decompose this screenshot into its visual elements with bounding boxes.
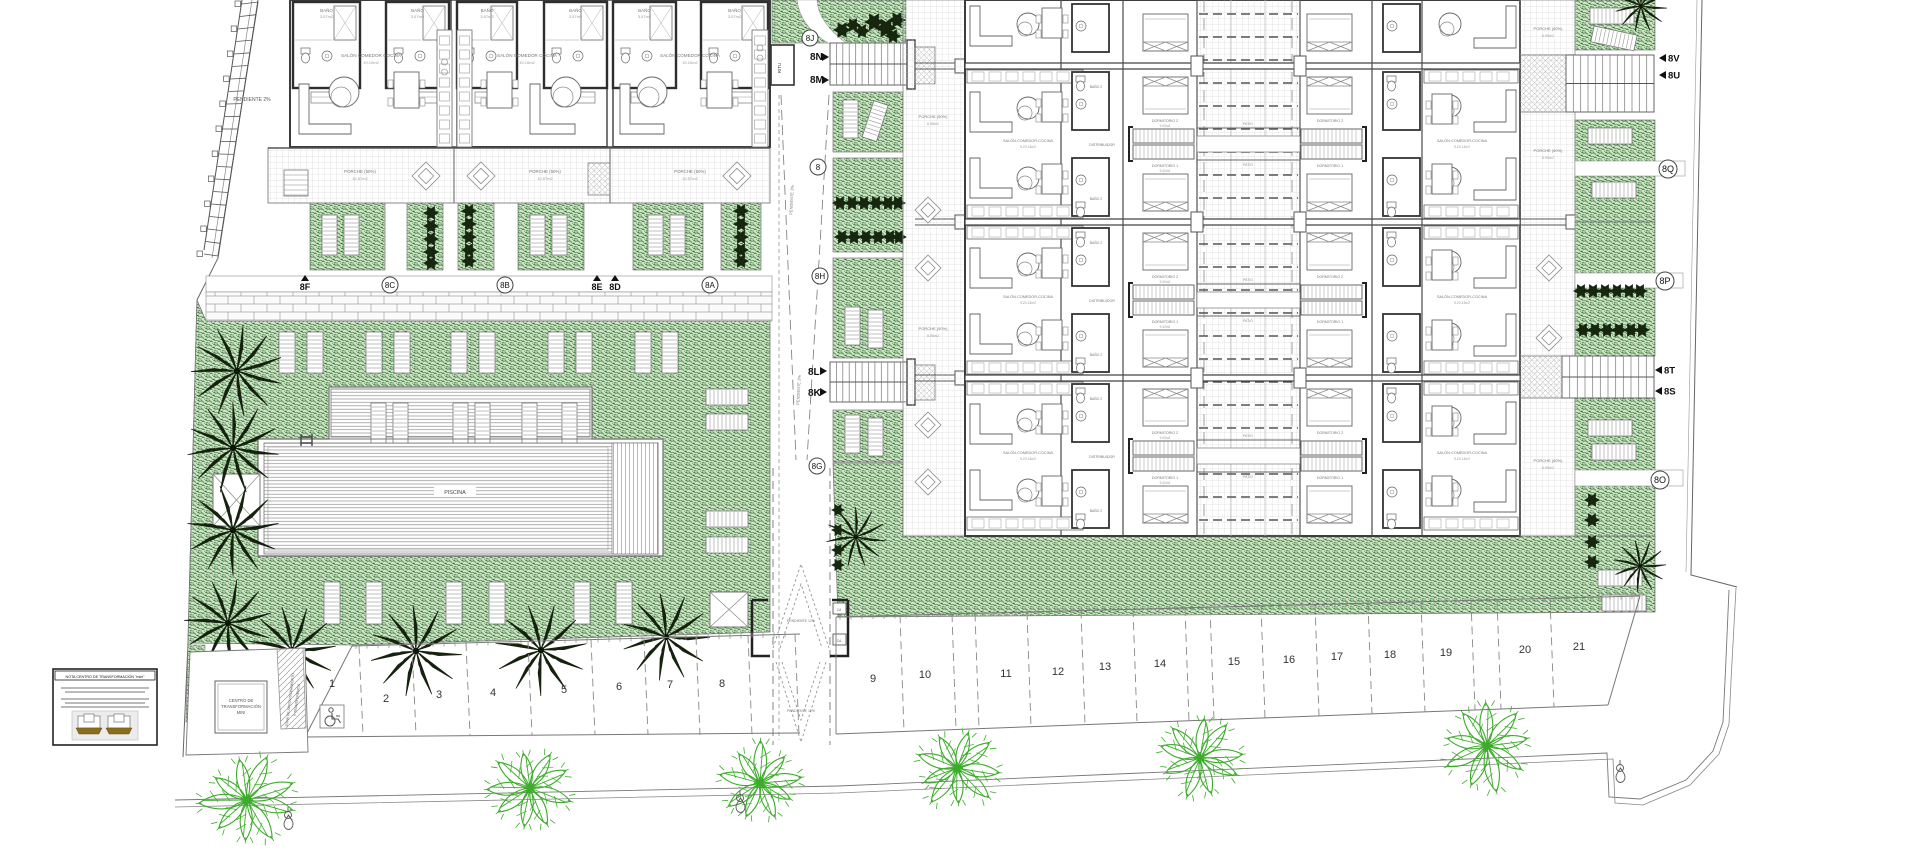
svg-text:DORMITORIO 2: DORMITORIO 2 [1317, 431, 1343, 435]
svg-text:8U: 8U [1668, 71, 1680, 82]
svg-text:SALÓN-COMEDOR-COCINA: SALÓN-COMEDOR-COCINA [1437, 450, 1487, 455]
svg-text:19.10m2: 19.10m2 [363, 60, 379, 65]
svg-text:9.20.13m2: 9.20.13m2 [1454, 301, 1470, 305]
svg-text:10.57m2: 10.57m2 [682, 176, 698, 181]
svg-text:PISCINA: PISCINA [444, 490, 466, 496]
svg-text:12: 12 [1052, 666, 1064, 678]
svg-text:3.57m2: 3.57m2 [728, 14, 742, 19]
svg-text:DORMITORIO 2: DORMITORIO 2 [1317, 275, 1343, 279]
svg-text:2: 2 [383, 693, 389, 705]
svg-text:BAÑO 2: BAÑO 2 [1090, 240, 1103, 245]
svg-text:BAÑO: BAÑO [728, 7, 741, 13]
svg-text:8: 8 [719, 678, 725, 690]
svg-text:DORMITORIO 2: DORMITORIO 2 [1317, 119, 1343, 123]
svg-text:SALÓN-COMEDOR-COCINA: SALÓN-COMEDOR-COCINA [1003, 138, 1053, 143]
svg-text:DISTRIBUIDOR: DISTRIBUIDOR [1089, 299, 1115, 303]
svg-text:SALÓN-COMEDOR-COCINA: SALÓN-COMEDOR-COCINA [1437, 138, 1487, 143]
svg-text:PATIO: PATIO [1243, 434, 1253, 438]
svg-text:PORCHE (50%): PORCHE (50%) [919, 326, 949, 331]
svg-text:8C: 8C [385, 281, 395, 290]
svg-text:20: 20 [1519, 644, 1531, 656]
svg-text:9.00m2: 9.00m2 [1160, 280, 1171, 284]
svg-text:8K: 8K [808, 388, 822, 399]
svg-text:3: 3 [436, 689, 442, 701]
svg-text:DORMITORIO 1: DORMITORIO 1 [1152, 164, 1178, 168]
svg-text:3.57m2: 3.57m2 [480, 14, 494, 19]
svg-text:BAÑO: BAÑO [638, 7, 651, 13]
svg-text:9.00m2: 9.00m2 [1160, 124, 1171, 128]
svg-text:PORCHE (50%): PORCHE (50%) [1534, 458, 1564, 463]
svg-text:BAÑO 2: BAÑO 2 [1090, 352, 1103, 357]
svg-text:SALÓN COMEDOR COCINA: SALÓN COMEDOR COCINA [660, 52, 721, 58]
svg-text:8Q: 8Q [1662, 164, 1674, 174]
svg-text:DISTRIBUIDOR: DISTRIBUIDOR [1089, 143, 1115, 147]
svg-text:6.95m2: 6.95m2 [1542, 156, 1554, 160]
svg-text:BAÑO: BAÑO [411, 7, 424, 13]
svg-text:19.10m2: 19.10m2 [519, 60, 535, 65]
svg-text:PORCHE (50%): PORCHE (50%) [1534, 26, 1564, 31]
svg-text:8S: 8S [1664, 387, 1676, 398]
svg-text:DORMITORIO 1: DORMITORIO 1 [1317, 164, 1343, 168]
svg-text:DORMITORIO 2: DORMITORIO 2 [1152, 119, 1178, 123]
svg-text:8D: 8D [609, 282, 621, 292]
svg-text:4: 4 [490, 687, 496, 699]
svg-text:3.57m2: 3.57m2 [320, 14, 334, 19]
svg-text:19: 19 [1440, 647, 1452, 659]
svg-text:10: 10 [919, 669, 931, 681]
svg-text:RITU: RITU [777, 63, 782, 74]
svg-text:PATIO: PATIO [1243, 475, 1253, 479]
svg-text:PATIO: PATIO [1243, 319, 1253, 323]
svg-text:9.42m2: 9.42m2 [1160, 481, 1171, 485]
svg-text:PENDIENTE 12%: PENDIENTE 12% [787, 709, 815, 713]
svg-text:8G: 8G [812, 462, 823, 471]
svg-text:6.95m2: 6.95m2 [1542, 466, 1554, 470]
svg-text:3.57m2: 3.57m2 [411, 14, 425, 19]
svg-text:17: 17 [1331, 651, 1343, 663]
svg-text:11: 11 [1000, 668, 1011, 680]
svg-text:PATIO: PATIO [1243, 278, 1253, 282]
svg-text:DORMITORIO 1: DORMITORIO 1 [1317, 476, 1343, 480]
svg-text:6.95m2: 6.95m2 [927, 122, 939, 126]
svg-text:SALÓN COMEDOR COCINA: SALÓN COMEDOR COCINA [497, 52, 558, 58]
svg-text:NOTA CENTRO DE TRANSFORMACIÓN: NOTA CENTRO DE TRANSFORMACIÓN "mini" [66, 674, 146, 679]
svg-text:PENDIENTE 2%: PENDIENTE 2% [233, 97, 271, 103]
svg-text:3.57m2: 3.57m2 [638, 14, 652, 19]
svg-text:BAÑO: BAÑO [481, 7, 494, 13]
svg-text:PORCHE (50%): PORCHE (50%) [529, 169, 561, 174]
svg-text:PATIO: PATIO [1243, 163, 1253, 167]
svg-text:15: 15 [1228, 656, 1240, 668]
svg-text:SALÓN COMEDOR COCINA: SALÓN COMEDOR COCINA [341, 52, 402, 58]
svg-text:8F: 8F [300, 282, 311, 292]
svg-text:DORMITORIO 2: DORMITORIO 2 [1152, 431, 1178, 435]
svg-text:BAÑO 2: BAÑO 2 [1090, 508, 1103, 513]
svg-text:SALÓN-COMEDOR-COCINA: SALÓN-COMEDOR-COCINA [1003, 294, 1053, 299]
svg-text:5: 5 [561, 684, 567, 696]
svg-text:21: 21 [1573, 641, 1585, 653]
svg-text:8B: 8B [500, 281, 510, 290]
svg-text:CENTRO DE: CENTRO DE [229, 698, 254, 703]
svg-text:8O: 8O [1654, 475, 1666, 485]
svg-text:8E: 8E [591, 282, 602, 292]
svg-text:10.57m2: 10.57m2 [352, 176, 368, 181]
svg-text:10.57m2: 10.57m2 [537, 176, 553, 181]
svg-text:9.20.13m2: 9.20.13m2 [1020, 457, 1036, 461]
svg-text:SALÓN-COMEDOR-COCINA: SALÓN-COMEDOR-COCINA [1437, 294, 1487, 299]
svg-text:DORMITORIO 2: DORMITORIO 2 [1152, 275, 1178, 279]
svg-text:6.95m2: 6.95m2 [1542, 34, 1554, 38]
svg-text:8L: 8L [808, 367, 820, 378]
svg-text:BAÑO 2: BAÑO 2 [1090, 84, 1103, 89]
svg-text:1: 1 [329, 678, 335, 690]
svg-text:9.20.13m2: 9.20.13m2 [1020, 301, 1036, 305]
svg-text:8V: 8V [1668, 54, 1680, 65]
svg-text:PENDIENTE 12%: PENDIENTE 12% [787, 619, 815, 623]
svg-text:PORCHE (50%): PORCHE (50%) [919, 114, 949, 119]
svg-text:TRANSFORMACIÓN: TRANSFORMACIÓN [221, 704, 261, 709]
svg-text:DORMITORIO 1: DORMITORIO 1 [1152, 476, 1178, 480]
svg-text:7: 7 [667, 679, 673, 691]
svg-text:8H: 8H [815, 272, 825, 281]
svg-text:3.57m2: 3.57m2 [569, 14, 583, 19]
svg-text:SALÓN-COMEDOR-COCINA: SALÓN-COMEDOR-COCINA [1003, 450, 1053, 455]
svg-text:8M: 8M [810, 75, 824, 86]
svg-text:DORMITORIO 1: DORMITORIO 1 [1152, 320, 1178, 324]
svg-text:18: 18 [1384, 649, 1396, 661]
svg-text:6.95m2: 6.95m2 [927, 334, 939, 338]
svg-text:8N: 8N [810, 52, 823, 63]
svg-text:14: 14 [1154, 658, 1166, 670]
svg-text:9: 9 [870, 673, 876, 685]
svg-text:PATIO: PATIO [1243, 122, 1253, 126]
svg-text:BAÑO 2: BAÑO 2 [1090, 196, 1103, 201]
svg-text:PORCHE (50%): PORCHE (50%) [1534, 148, 1564, 153]
svg-text:PORCHE (50%): PORCHE (50%) [344, 169, 376, 174]
svg-text:13: 13 [1099, 661, 1111, 673]
svg-text:9.20.13m2: 9.20.13m2 [1454, 457, 1470, 461]
svg-text:9.20.13m2: 9.20.13m2 [1020, 145, 1036, 149]
svg-text:8J: 8J [806, 34, 814, 43]
svg-text:9.00m2: 9.00m2 [1160, 436, 1171, 440]
svg-text:8P: 8P [1659, 276, 1670, 286]
svg-text:BAÑO: BAÑO [320, 7, 333, 13]
svg-text:8T: 8T [1664, 366, 1675, 377]
svg-text:9.42m2: 9.42m2 [1160, 169, 1171, 173]
svg-text:19.10m2: 19.10m2 [682, 60, 698, 65]
svg-text:6: 6 [616, 681, 622, 693]
svg-text:9.20.13m2: 9.20.13m2 [1454, 145, 1470, 149]
svg-text:PORCHE (50%): PORCHE (50%) [674, 169, 706, 174]
svg-text:DISTRIBUIDOR: DISTRIBUIDOR [1089, 455, 1115, 459]
svg-text:8A: 8A [705, 281, 715, 290]
svg-text:BAÑO: BAÑO [569, 7, 582, 13]
svg-text:8: 8 [816, 163, 821, 172]
svg-text:9.42m2: 9.42m2 [1160, 325, 1171, 329]
svg-text:16: 16 [1283, 654, 1295, 666]
svg-text:DORMITORIO 1: DORMITORIO 1 [1317, 320, 1343, 324]
svg-text:BAÑO 2: BAÑO 2 [1090, 396, 1103, 401]
svg-text:MINI: MINI [237, 710, 246, 715]
